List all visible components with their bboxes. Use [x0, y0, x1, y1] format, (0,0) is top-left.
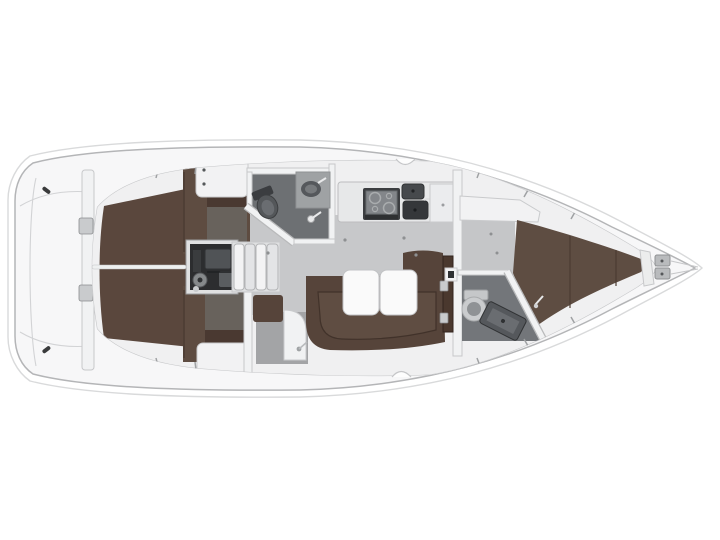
starboard-cabin-curved-wall [284, 310, 306, 360]
headboard-latch-2 [202, 182, 205, 185]
aft-head-wall-left [247, 172, 252, 208]
engine-manifold [193, 250, 201, 272]
engine-compartment [186, 240, 238, 294]
interior [80, 140, 670, 400]
starboard-cabin-floor [205, 292, 245, 330]
door-hinge-top [440, 281, 448, 291]
table-leaf-right [380, 270, 417, 315]
yacht-layout-plan [0, 0, 720, 540]
engine-gearbox [219, 271, 233, 287]
floor-socket-4 [414, 253, 417, 256]
step-4 [267, 244, 278, 290]
companionway-steps [232, 242, 280, 292]
floor-socket-1 [266, 251, 269, 254]
step-1 [234, 244, 244, 290]
locker-latch-top [661, 260, 664, 263]
engine-filter [193, 286, 199, 292]
fwd-floor-dot-1 [490, 233, 493, 236]
platform-hinge-top [79, 218, 93, 234]
engine-pulley-hub [198, 278, 203, 283]
fwd-shower-head [534, 304, 538, 308]
engine-block [205, 249, 231, 269]
fwd-floor-dot-2 [496, 252, 499, 255]
table-leaf-left [343, 270, 379, 315]
floor-socket-3 [402, 236, 405, 239]
aft-head-sink-basin [305, 185, 317, 194]
locker-latch-bottom [661, 273, 664, 276]
platform-hinge-bottom [79, 285, 93, 301]
aft-head-wall-bottom [294, 239, 335, 244]
forward-cabin-floor [462, 218, 515, 276]
floor-socket-2 [343, 238, 346, 241]
starboard-cabin-wall [244, 290, 252, 376]
sink-large-drain [413, 208, 416, 211]
mainsheet-track [92, 265, 186, 269]
headboard-latch-1 [202, 168, 205, 171]
forward-head-wall-top [458, 270, 510, 275]
fwd-toilet-seat [467, 302, 481, 316]
stove-knobs [365, 215, 398, 219]
door-hinge-bottom [440, 313, 448, 323]
step-3 [256, 244, 266, 290]
galley-locker-knob [442, 204, 445, 207]
sink-small-drain [411, 189, 414, 192]
door-latch-notch [448, 271, 454, 278]
galley [338, 182, 457, 222]
step-2 [245, 244, 255, 290]
starboard-cabin-backrest [253, 295, 283, 322]
